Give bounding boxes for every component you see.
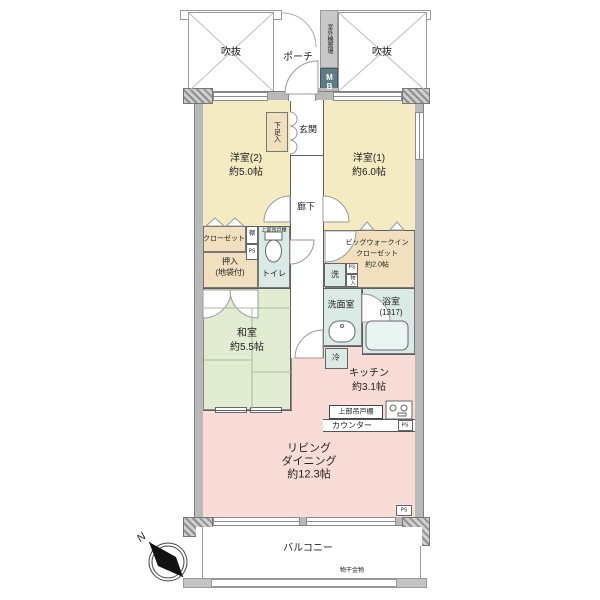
ps-label-4: PS [401, 509, 408, 514]
western2-size: 約5.0帖 [229, 168, 263, 178]
counter-label: カウンター [332, 422, 372, 430]
storage-small-label: 物入 [350, 275, 355, 285]
kitchen-upper-cabinet-label: 上部吊戸棚 [339, 409, 374, 416]
toilet-label: トイレ [262, 270, 286, 278]
corridor [290, 100, 323, 358]
outdoor-unit-label: 室外機置場 [326, 24, 332, 54]
washitsu-name: 和室 [237, 329, 257, 339]
fridge-label: 冷 [332, 354, 340, 362]
window-living-right [306, 517, 396, 526]
meter-box-label: MB [325, 73, 333, 91]
wall-wet-top [323, 288, 415, 289]
wall-west1-bottom [323, 230, 415, 231]
closet-label: クローゼット [203, 236, 245, 243]
washroom-label: 洗面室 [327, 301, 354, 310]
wall-bath-washroom [362, 288, 363, 354]
living-line1: リビング [287, 444, 331, 455]
washitsu-size: 約5.5帖 [230, 343, 264, 353]
window-west1-side [415, 112, 424, 160]
void-left-label: 吹抜 [221, 48, 241, 58]
room-washroom [323, 288, 362, 346]
wic-line1: ビッグウォークイン [346, 240, 409, 247]
room-toilet [258, 226, 290, 288]
compass-icon [149, 542, 187, 581]
hallway-label: 廊下 [297, 203, 315, 212]
void-right-label: 吹抜 [372, 48, 392, 58]
entrance-opening [288, 92, 316, 101]
entrance-label: 玄関 [299, 126, 317, 135]
kitchen-name: キッチン [349, 369, 389, 379]
balcony-right-rail [420, 546, 421, 580]
shelf-label: 棚 [249, 231, 255, 237]
entrance-door-arc [285, 61, 318, 94]
corner-top-left [183, 88, 213, 104]
wall-corridor-left [290, 100, 291, 410]
wall-corridor-right [323, 100, 324, 358]
western1-name: 洋室(1) [353, 154, 385, 164]
laundry-fitting-label: 物干金物 [340, 568, 364, 574]
balcony-bottom-opening [211, 579, 397, 587]
oshiire-line1: 押入 [222, 258, 238, 266]
shoebox-label: 下足入 [274, 122, 281, 143]
window-west2 [213, 92, 268, 101]
porch-arc-icon [282, 13, 316, 47]
living-line2: ダイニング [282, 457, 337, 468]
balcony-left-rail [202, 527, 203, 580]
wall-washroom-bottom [323, 346, 362, 347]
window-west1 [333, 92, 402, 101]
western1-size: 約6.0帖 [352, 168, 386, 178]
wall-genkan-step [290, 155, 323, 156]
wic-line3: 約2.0帖 [365, 262, 389, 269]
ps-label-3: PS [402, 424, 409, 429]
ps-label-1: PS [249, 250, 256, 255]
room-western1 [323, 100, 415, 230]
oshiire-line2: (地袋付) [215, 269, 244, 277]
bathroom-size: (1317) [379, 309, 402, 317]
compass-north-label: N [135, 531, 148, 545]
window-living-left [213, 517, 300, 526]
western2-name: 洋室(2) [230, 154, 262, 164]
wall-washitsu-bottom [203, 410, 292, 411]
floor-plan: 吹抜 ポーチ 室外機置場 MB 吹抜 洋室(2) 約5.0帖 下足入 玄関 洋室… [0, 0, 600, 600]
porch-label: ポーチ [283, 53, 313, 63]
wall-bath-bottom [362, 354, 415, 355]
kitchen-size: 約3.1帖 [352, 383, 386, 393]
washer-label: 洗 [331, 271, 339, 279]
bathroom-name: 浴室 [382, 298, 400, 307]
toilet-upper-shelf-label: 上部吊戸棚 [261, 229, 286, 234]
balcony-label: バルコニー [283, 544, 333, 554]
wall-oshiire-bottom [203, 288, 290, 289]
wic-line2: クローゼット [356, 251, 398, 258]
corner-top-right [402, 88, 430, 104]
living-line3: 約12.3帖 [287, 470, 330, 481]
ps-label-2: PS [349, 266, 356, 271]
